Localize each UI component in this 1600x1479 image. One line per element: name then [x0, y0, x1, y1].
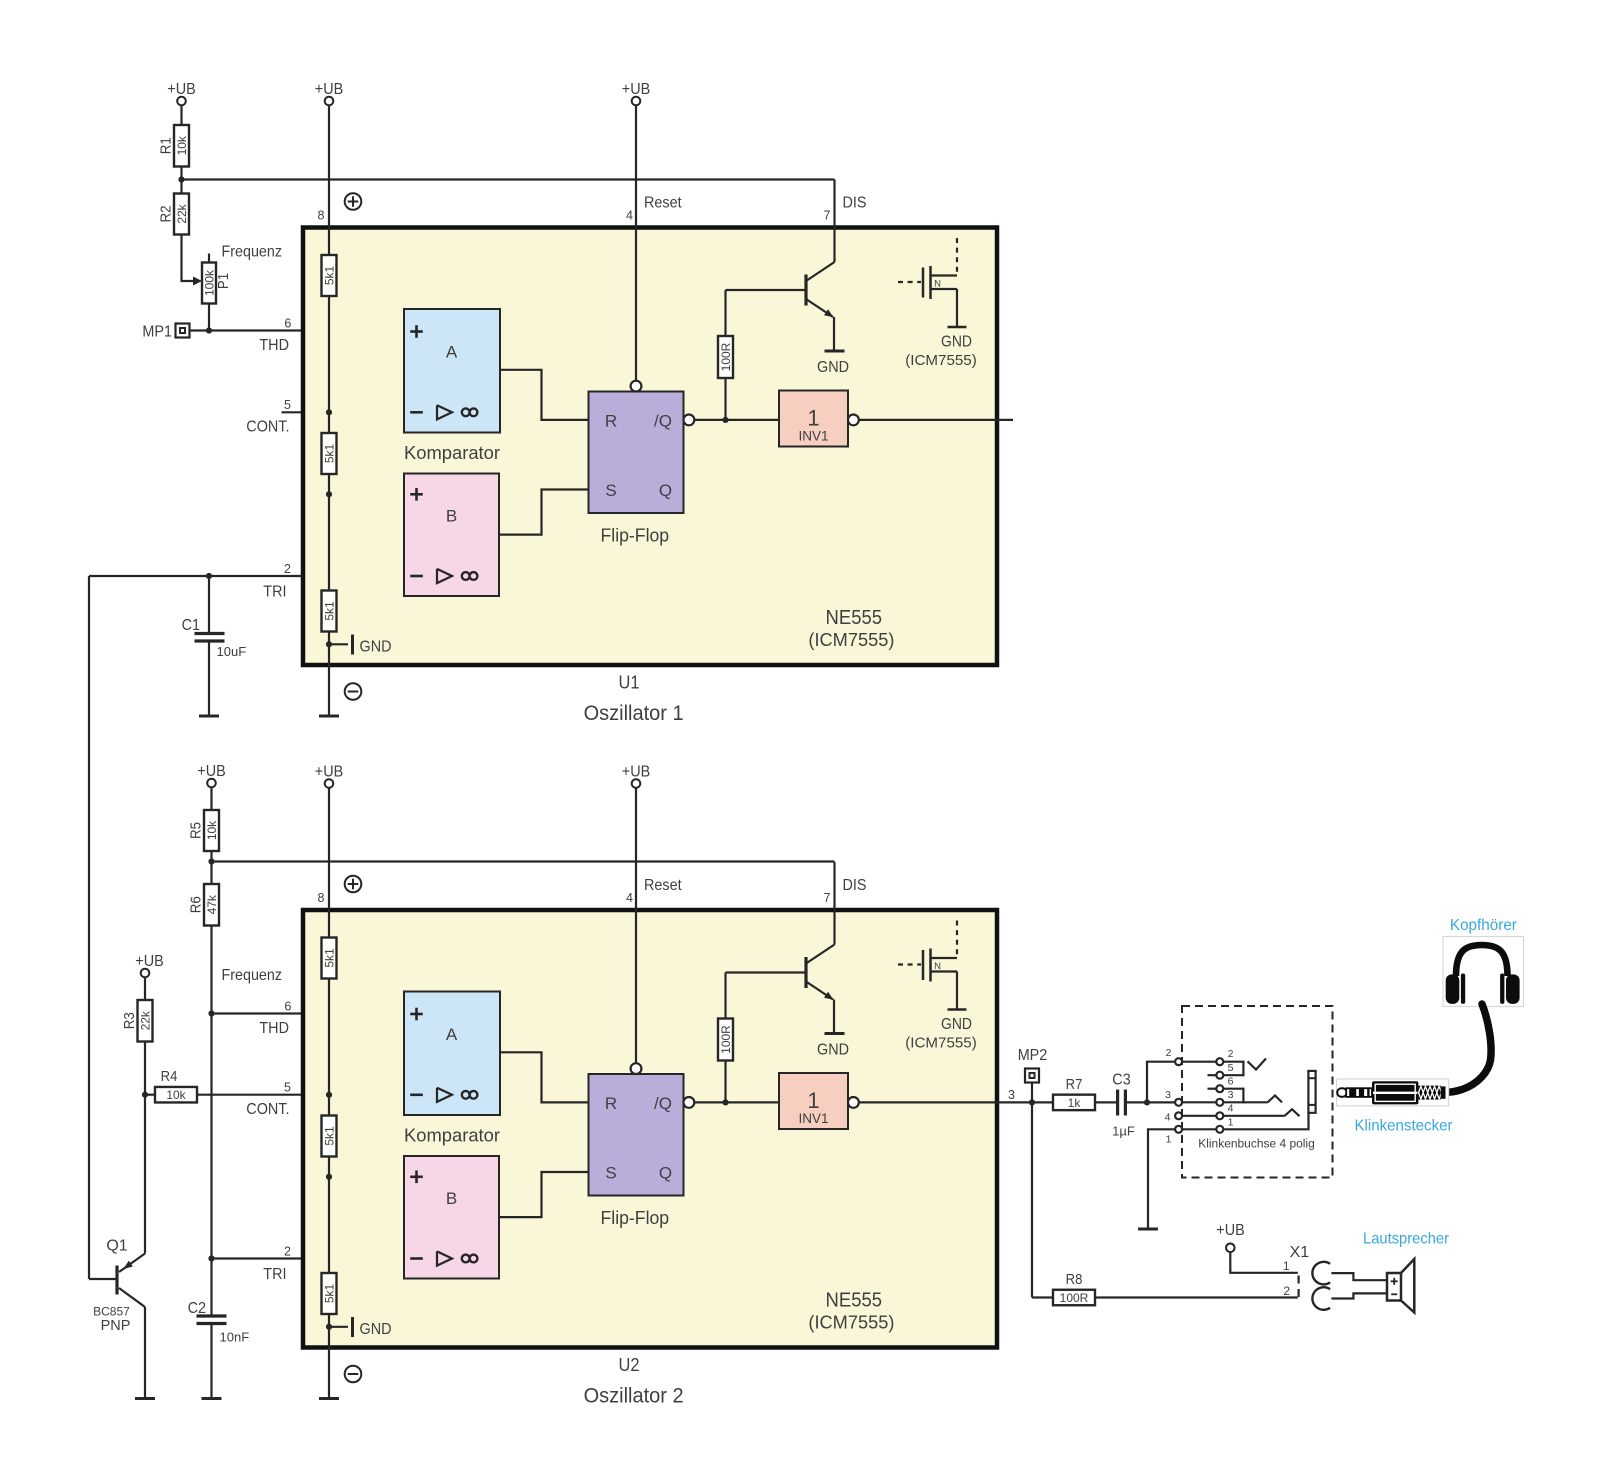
svg-text:+UB: +UB [1216, 1222, 1244, 1239]
svg-text:S: S [605, 1164, 616, 1183]
svg-text:MP1: MP1 [142, 324, 172, 341]
svg-text:GND: GND [941, 334, 972, 351]
svg-text:4: 4 [1228, 1103, 1234, 1115]
svg-text:R2: R2 [159, 205, 175, 222]
svg-text:Q: Q [659, 1164, 672, 1183]
svg-text:+UB: +UB [315, 764, 343, 781]
svg-text:R5: R5 [189, 822, 205, 839]
svg-text:+UB: +UB [135, 953, 163, 970]
svg-text:3: 3 [1228, 1089, 1234, 1101]
svg-text:10uF: 10uF [217, 644, 247, 659]
svg-text:1: 1 [1166, 1134, 1172, 1146]
svg-text:5k1: 5k1 [322, 1126, 336, 1146]
svg-text:Klinkenstecker: Klinkenstecker [1355, 1118, 1454, 1135]
svg-text:10k: 10k [166, 1088, 186, 1102]
svg-text:Komparator: Komparator [404, 1126, 500, 1146]
svg-text:CONT.: CONT. [246, 419, 289, 436]
svg-text:2: 2 [1228, 1048, 1234, 1060]
svg-text:B: B [446, 507, 457, 526]
svg-text:Kopfhörer: Kopfhörer [1450, 917, 1518, 934]
svg-text:8: 8 [318, 209, 325, 223]
svg-text:+UB: +UB [622, 764, 650, 781]
svg-text:Flip-Flop: Flip-Flop [601, 1208, 670, 1228]
svg-text:5k1: 5k1 [322, 948, 336, 968]
svg-text:5k1: 5k1 [322, 1284, 336, 1304]
svg-text:R1: R1 [159, 137, 175, 154]
svg-text:R: R [605, 1094, 617, 1113]
svg-text:S: S [605, 481, 616, 500]
svg-text:10nF: 10nF [220, 1330, 250, 1345]
svg-text:R4: R4 [161, 1069, 178, 1085]
svg-text:R7: R7 [1066, 1077, 1083, 1093]
svg-text:B: B [446, 1189, 457, 1208]
svg-text:R6: R6 [189, 896, 205, 913]
svg-text:/Q: /Q [654, 412, 672, 431]
svg-text:A: A [446, 1025, 458, 1044]
svg-text:Klinkenbuchse 4 polig: Klinkenbuchse 4 polig [1198, 1138, 1315, 1150]
svg-text:Komparator: Komparator [404, 443, 500, 463]
svg-text:4: 4 [1165, 1112, 1171, 1124]
svg-text:DIS: DIS [843, 195, 867, 212]
svg-text:(ICM7555): (ICM7555) [808, 630, 894, 650]
svg-text:100R: 100R [719, 342, 733, 371]
svg-text:PNP: PNP [101, 1318, 131, 1334]
svg-text:INV1: INV1 [798, 1111, 828, 1126]
svg-text:R: R [605, 412, 617, 431]
svg-text:5k1: 5k1 [322, 266, 336, 286]
svg-text:Frequenz: Frequenz [222, 244, 283, 261]
svg-text:NE555: NE555 [826, 1290, 883, 1312]
svg-text:1: 1 [807, 1088, 819, 1113]
svg-text:Q1: Q1 [106, 1238, 127, 1255]
svg-text:Oszillator 2: Oszillator 2 [584, 1384, 684, 1407]
svg-text:10k: 10k [205, 820, 219, 840]
svg-text:GND: GND [817, 1042, 849, 1059]
svg-text:7: 7 [824, 209, 831, 223]
svg-text:100R: 100R [719, 1025, 733, 1054]
svg-text:TRI: TRI [263, 1266, 286, 1283]
svg-text:8: 8 [318, 891, 325, 905]
svg-text:47k: 47k [205, 894, 219, 914]
svg-text:100R: 100R [1060, 1291, 1089, 1305]
svg-text:1: 1 [1228, 1117, 1234, 1129]
svg-text:+UB: +UB [167, 81, 195, 98]
svg-text:2: 2 [1166, 1047, 1172, 1059]
svg-text:X1: X1 [1290, 1244, 1310, 1261]
svg-text:NE555: NE555 [826, 607, 883, 629]
svg-text:2: 2 [284, 562, 291, 576]
svg-text:Lautsprecher: Lautsprecher [1363, 1231, 1450, 1248]
svg-text:5: 5 [284, 1081, 291, 1095]
svg-text:THD: THD [259, 337, 289, 354]
svg-text:U2: U2 [619, 1354, 640, 1375]
svg-text:7: 7 [824, 891, 831, 905]
svg-text:C1: C1 [182, 617, 200, 634]
svg-text:TRI: TRI [263, 584, 286, 601]
svg-text:(ICM7555): (ICM7555) [808, 1313, 894, 1333]
svg-text:22k: 22k [175, 203, 189, 223]
svg-text:THD: THD [259, 1020, 289, 1037]
svg-text:Reset: Reset [644, 877, 682, 894]
svg-text:Q: Q [659, 481, 672, 500]
svg-text:GND: GND [360, 1321, 392, 1338]
svg-text:U1: U1 [619, 672, 640, 693]
svg-text:R8: R8 [1066, 1272, 1083, 1288]
svg-text:1µF: 1µF [1112, 1124, 1135, 1139]
svg-text:N: N [934, 279, 941, 290]
svg-text:2: 2 [1283, 1284, 1290, 1298]
svg-text:Oszillator 1: Oszillator 1 [584, 702, 684, 725]
svg-text:(ICM7555): (ICM7555) [905, 1035, 977, 1052]
svg-text:5k1: 5k1 [322, 601, 336, 621]
svg-text:N: N [934, 961, 941, 972]
svg-text:DIS: DIS [843, 877, 867, 894]
svg-text:Frequenz: Frequenz [222, 967, 283, 984]
svg-text:+UB: +UB [197, 763, 225, 780]
svg-text:6: 6 [284, 316, 291, 330]
svg-text:3: 3 [1165, 1089, 1171, 1101]
svg-text:4: 4 [626, 209, 633, 223]
svg-text:10k: 10k [175, 135, 189, 155]
svg-text:GND: GND [941, 1016, 972, 1033]
svg-text:CONT.: CONT. [246, 1101, 289, 1118]
svg-text:GND: GND [817, 359, 849, 376]
svg-text:+UB: +UB [622, 81, 650, 98]
svg-text:100k: 100k [202, 269, 216, 296]
svg-text:/Q: /Q [654, 1094, 672, 1113]
svg-text:4: 4 [626, 891, 633, 905]
svg-text:Flip-Flop: Flip-Flop [601, 526, 670, 546]
svg-text:INV1: INV1 [798, 429, 828, 444]
svg-text:R3: R3 [122, 1012, 138, 1029]
svg-text:GND: GND [360, 639, 392, 656]
svg-text:6: 6 [284, 999, 291, 1013]
svg-text:22k: 22k [138, 1010, 152, 1030]
svg-text:2: 2 [284, 1244, 291, 1258]
svg-text:3: 3 [1008, 1088, 1015, 1102]
svg-text:+UB: +UB [315, 81, 343, 98]
svg-text:A: A [446, 343, 458, 362]
svg-text:P1: P1 [216, 273, 232, 289]
svg-text:Reset: Reset [644, 195, 682, 212]
svg-text:MP2: MP2 [1018, 1047, 1048, 1064]
svg-text:5: 5 [284, 398, 291, 412]
svg-text:1: 1 [1283, 1259, 1290, 1273]
svg-text:(ICM7555): (ICM7555) [905, 352, 977, 369]
svg-text:5: 5 [1228, 1062, 1234, 1074]
svg-text:6: 6 [1228, 1075, 1234, 1087]
svg-text:5k1: 5k1 [322, 444, 336, 464]
svg-text:C2: C2 [188, 1300, 206, 1317]
svg-text:1k: 1k [1068, 1096, 1082, 1110]
svg-text:BC857: BC857 [93, 1305, 130, 1319]
svg-text:1: 1 [807, 406, 819, 431]
svg-text:C3: C3 [1112, 1072, 1130, 1089]
